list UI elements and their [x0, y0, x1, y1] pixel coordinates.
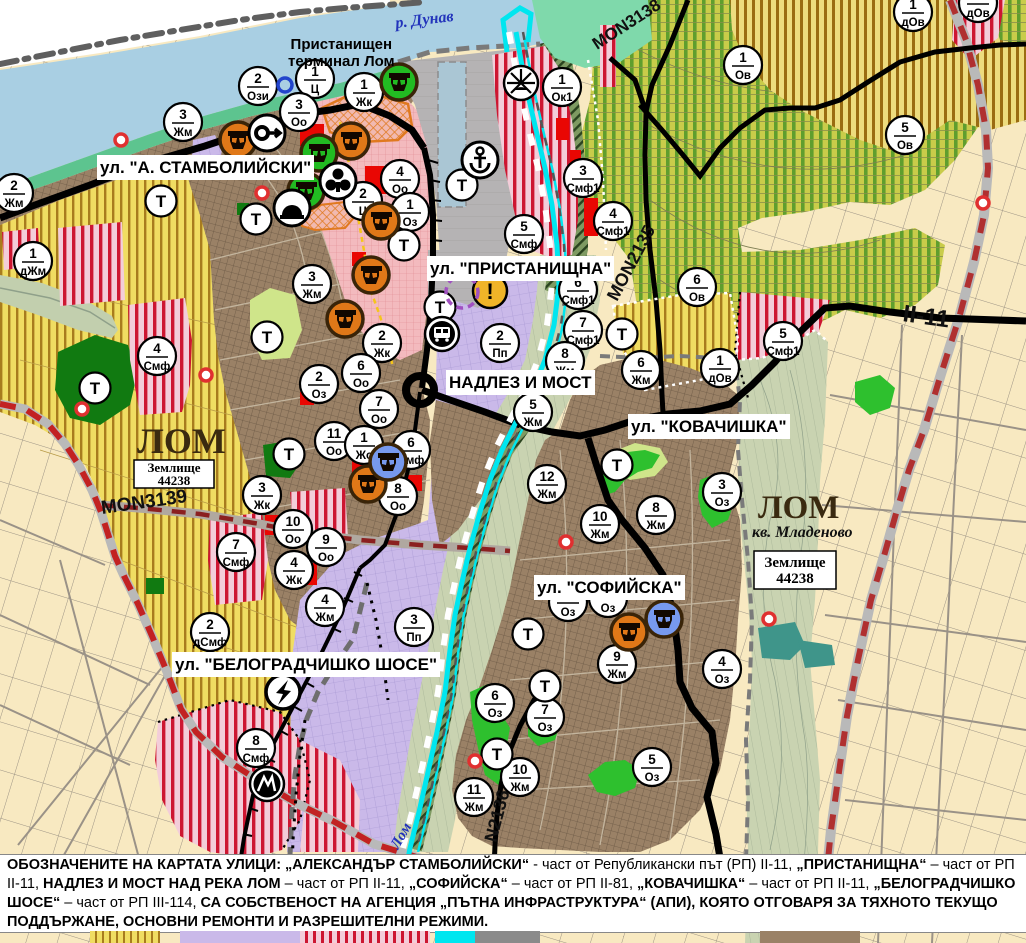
svg-text:Жм: Жм: [523, 417, 543, 429]
svg-text:дЖм: дЖм: [20, 266, 46, 278]
svg-text:Оо: Оо: [353, 378, 369, 390]
svg-text:1: 1: [360, 430, 368, 445]
svg-text:Жм: Жм: [302, 289, 322, 301]
svg-text:8: 8: [561, 346, 569, 361]
svg-text:4: 4: [290, 555, 298, 570]
svg-text:Оо: Оо: [318, 552, 334, 564]
svg-text:дОв: дОв: [901, 17, 924, 29]
svg-text:Жм: Жм: [510, 782, 530, 794]
svg-text:5: 5: [648, 752, 656, 767]
svg-text:2: 2: [315, 369, 323, 384]
svg-text:5: 5: [529, 397, 537, 412]
svg-text:9: 9: [613, 649, 621, 664]
svg-text:Жм: Жм: [646, 520, 666, 532]
svg-text:Ов: Ов: [689, 292, 705, 304]
svg-text:8: 8: [652, 500, 660, 515]
svg-text:4: 4: [609, 206, 617, 221]
svg-text:1: 1: [716, 353, 724, 368]
svg-text:5: 5: [779, 326, 787, 341]
svg-text:6: 6: [407, 435, 415, 450]
svg-text:Жк: Жк: [355, 97, 372, 109]
svg-text:3: 3: [295, 97, 303, 112]
svg-text:Смф1: Смф1: [566, 183, 600, 195]
svg-text:Жк: Жк: [285, 575, 302, 587]
svg-text:10: 10: [285, 514, 300, 529]
svg-text:T: T: [523, 625, 534, 644]
svg-text:7: 7: [375, 394, 383, 409]
svg-text:2: 2: [254, 71, 262, 86]
svg-text:7: 7: [232, 537, 240, 552]
svg-text:Оо: Оо: [371, 414, 387, 426]
svg-text:Оо: Оо: [326, 446, 342, 458]
svg-text:6: 6: [357, 358, 365, 373]
svg-text:Жм: Жм: [537, 489, 557, 501]
svg-text:T: T: [262, 328, 273, 347]
svg-text:T: T: [540, 677, 551, 696]
svg-text:Оз: Оз: [601, 603, 616, 615]
svg-text:8: 8: [252, 733, 260, 748]
svg-text:Оз: Оз: [312, 389, 327, 401]
svg-text:Оз: Оз: [561, 607, 576, 619]
svg-text:10: 10: [512, 762, 527, 777]
svg-text:Смф1: Смф1: [596, 226, 630, 238]
svg-text:4: 4: [321, 592, 329, 607]
svg-text:T: T: [612, 456, 623, 475]
svg-text:дСмф: дСмф: [193, 637, 227, 649]
svg-text:дОв: дОв: [708, 373, 731, 385]
svg-text:Оз: Оз: [488, 708, 503, 720]
svg-text:дОв: дОв: [966, 8, 989, 20]
svg-text:2: 2: [496, 328, 504, 343]
svg-text:2: 2: [359, 186, 367, 201]
svg-text:44238: 44238: [158, 473, 191, 488]
svg-text:Оо: Оо: [285, 534, 301, 546]
svg-text:8: 8: [394, 481, 402, 496]
svg-text:T: T: [617, 325, 628, 344]
svg-text:ЛОМ: ЛОМ: [758, 490, 839, 526]
svg-text:1: 1: [406, 197, 414, 212]
svg-text:Смф1: Смф1: [561, 295, 595, 307]
svg-text:Смф1: Смф1: [766, 346, 800, 358]
svg-text:1: 1: [974, 0, 982, 3]
svg-text:Смф: Смф: [243, 753, 270, 765]
svg-text:6: 6: [637, 355, 645, 370]
svg-text:1: 1: [909, 0, 917, 12]
svg-text:T: T: [90, 379, 101, 398]
svg-text:Оо: Оо: [291, 117, 307, 129]
svg-text:Землище: Землище: [764, 555, 826, 571]
svg-text:1: 1: [739, 50, 747, 65]
svg-text:Ози: Ози: [247, 91, 269, 103]
svg-text:T: T: [435, 298, 446, 317]
svg-text:!: !: [486, 279, 493, 304]
svg-text:Жк: Жк: [373, 348, 390, 360]
svg-text:Оз: Оз: [715, 674, 730, 686]
svg-text:Жм: Жм: [4, 198, 24, 210]
svg-text:3: 3: [410, 612, 418, 627]
svg-text:Жм: Жм: [173, 127, 193, 139]
svg-text:Оз: Оз: [715, 497, 730, 509]
svg-text:6: 6: [693, 272, 701, 287]
svg-text:4: 4: [396, 164, 404, 179]
svg-text:T: T: [492, 745, 503, 764]
svg-text:44238: 44238: [776, 571, 814, 587]
svg-text:Пп: Пп: [492, 348, 507, 360]
svg-text:Оз: Оз: [538, 722, 553, 734]
svg-text:Жм: Жм: [607, 669, 627, 681]
svg-text:11: 11: [327, 426, 342, 441]
svg-text:Жк: Жк: [253, 500, 270, 512]
svg-text:4: 4: [718, 654, 726, 669]
svg-text:3: 3: [308, 269, 316, 284]
svg-text:T: T: [251, 210, 262, 229]
svg-text:5: 5: [901, 120, 909, 135]
svg-text:2: 2: [10, 178, 18, 193]
svg-text:7: 7: [579, 315, 587, 330]
svg-text:T: T: [399, 236, 410, 255]
svg-text:Смф: Смф: [511, 239, 538, 251]
svg-text:9: 9: [322, 532, 330, 547]
svg-text:Жм: Жм: [315, 612, 335, 624]
svg-text:Оз: Оз: [645, 772, 660, 784]
svg-text:5: 5: [520, 219, 528, 234]
svg-text:Оо: Оо: [390, 501, 406, 513]
svg-text:Ов: Ов: [735, 70, 751, 82]
svg-text:ЛОМ: ЛОМ: [137, 421, 226, 461]
svg-text:Ов: Ов: [897, 140, 913, 152]
svg-text:3: 3: [579, 163, 587, 178]
svg-text:4: 4: [153, 341, 161, 356]
svg-text:3: 3: [718, 477, 726, 492]
svg-text:1: 1: [360, 77, 368, 92]
svg-text:кв. Младеново: кв. Младеново: [752, 524, 853, 541]
svg-text:Жм: Жм: [464, 802, 484, 814]
svg-text:Смф: Смф: [223, 557, 250, 569]
svg-text:Оз: Оз: [403, 217, 418, 229]
svg-text:6: 6: [491, 688, 499, 703]
svg-text:7: 7: [541, 702, 549, 717]
svg-text:3: 3: [179, 107, 187, 122]
svg-text:T: T: [156, 192, 167, 211]
svg-text:2: 2: [378, 328, 386, 343]
svg-text:T: T: [284, 445, 295, 464]
svg-text:Смф: Смф: [144, 361, 171, 373]
svg-text:11: 11: [467, 782, 482, 797]
svg-text:2: 2: [206, 617, 214, 632]
svg-text:1: 1: [558, 72, 566, 87]
svg-text:12: 12: [539, 469, 554, 484]
svg-text:T: T: [457, 176, 468, 195]
svg-text:Ц: Ц: [311, 84, 320, 96]
svg-text:Пп: Пп: [406, 632, 421, 644]
svg-text:10: 10: [592, 509, 607, 524]
svg-text:1: 1: [29, 246, 37, 261]
svg-text:Ок1: Ок1: [551, 92, 573, 104]
svg-text:Жм: Жм: [590, 529, 610, 541]
svg-text:Жм: Жм: [631, 375, 651, 387]
svg-text:3: 3: [258, 480, 266, 495]
